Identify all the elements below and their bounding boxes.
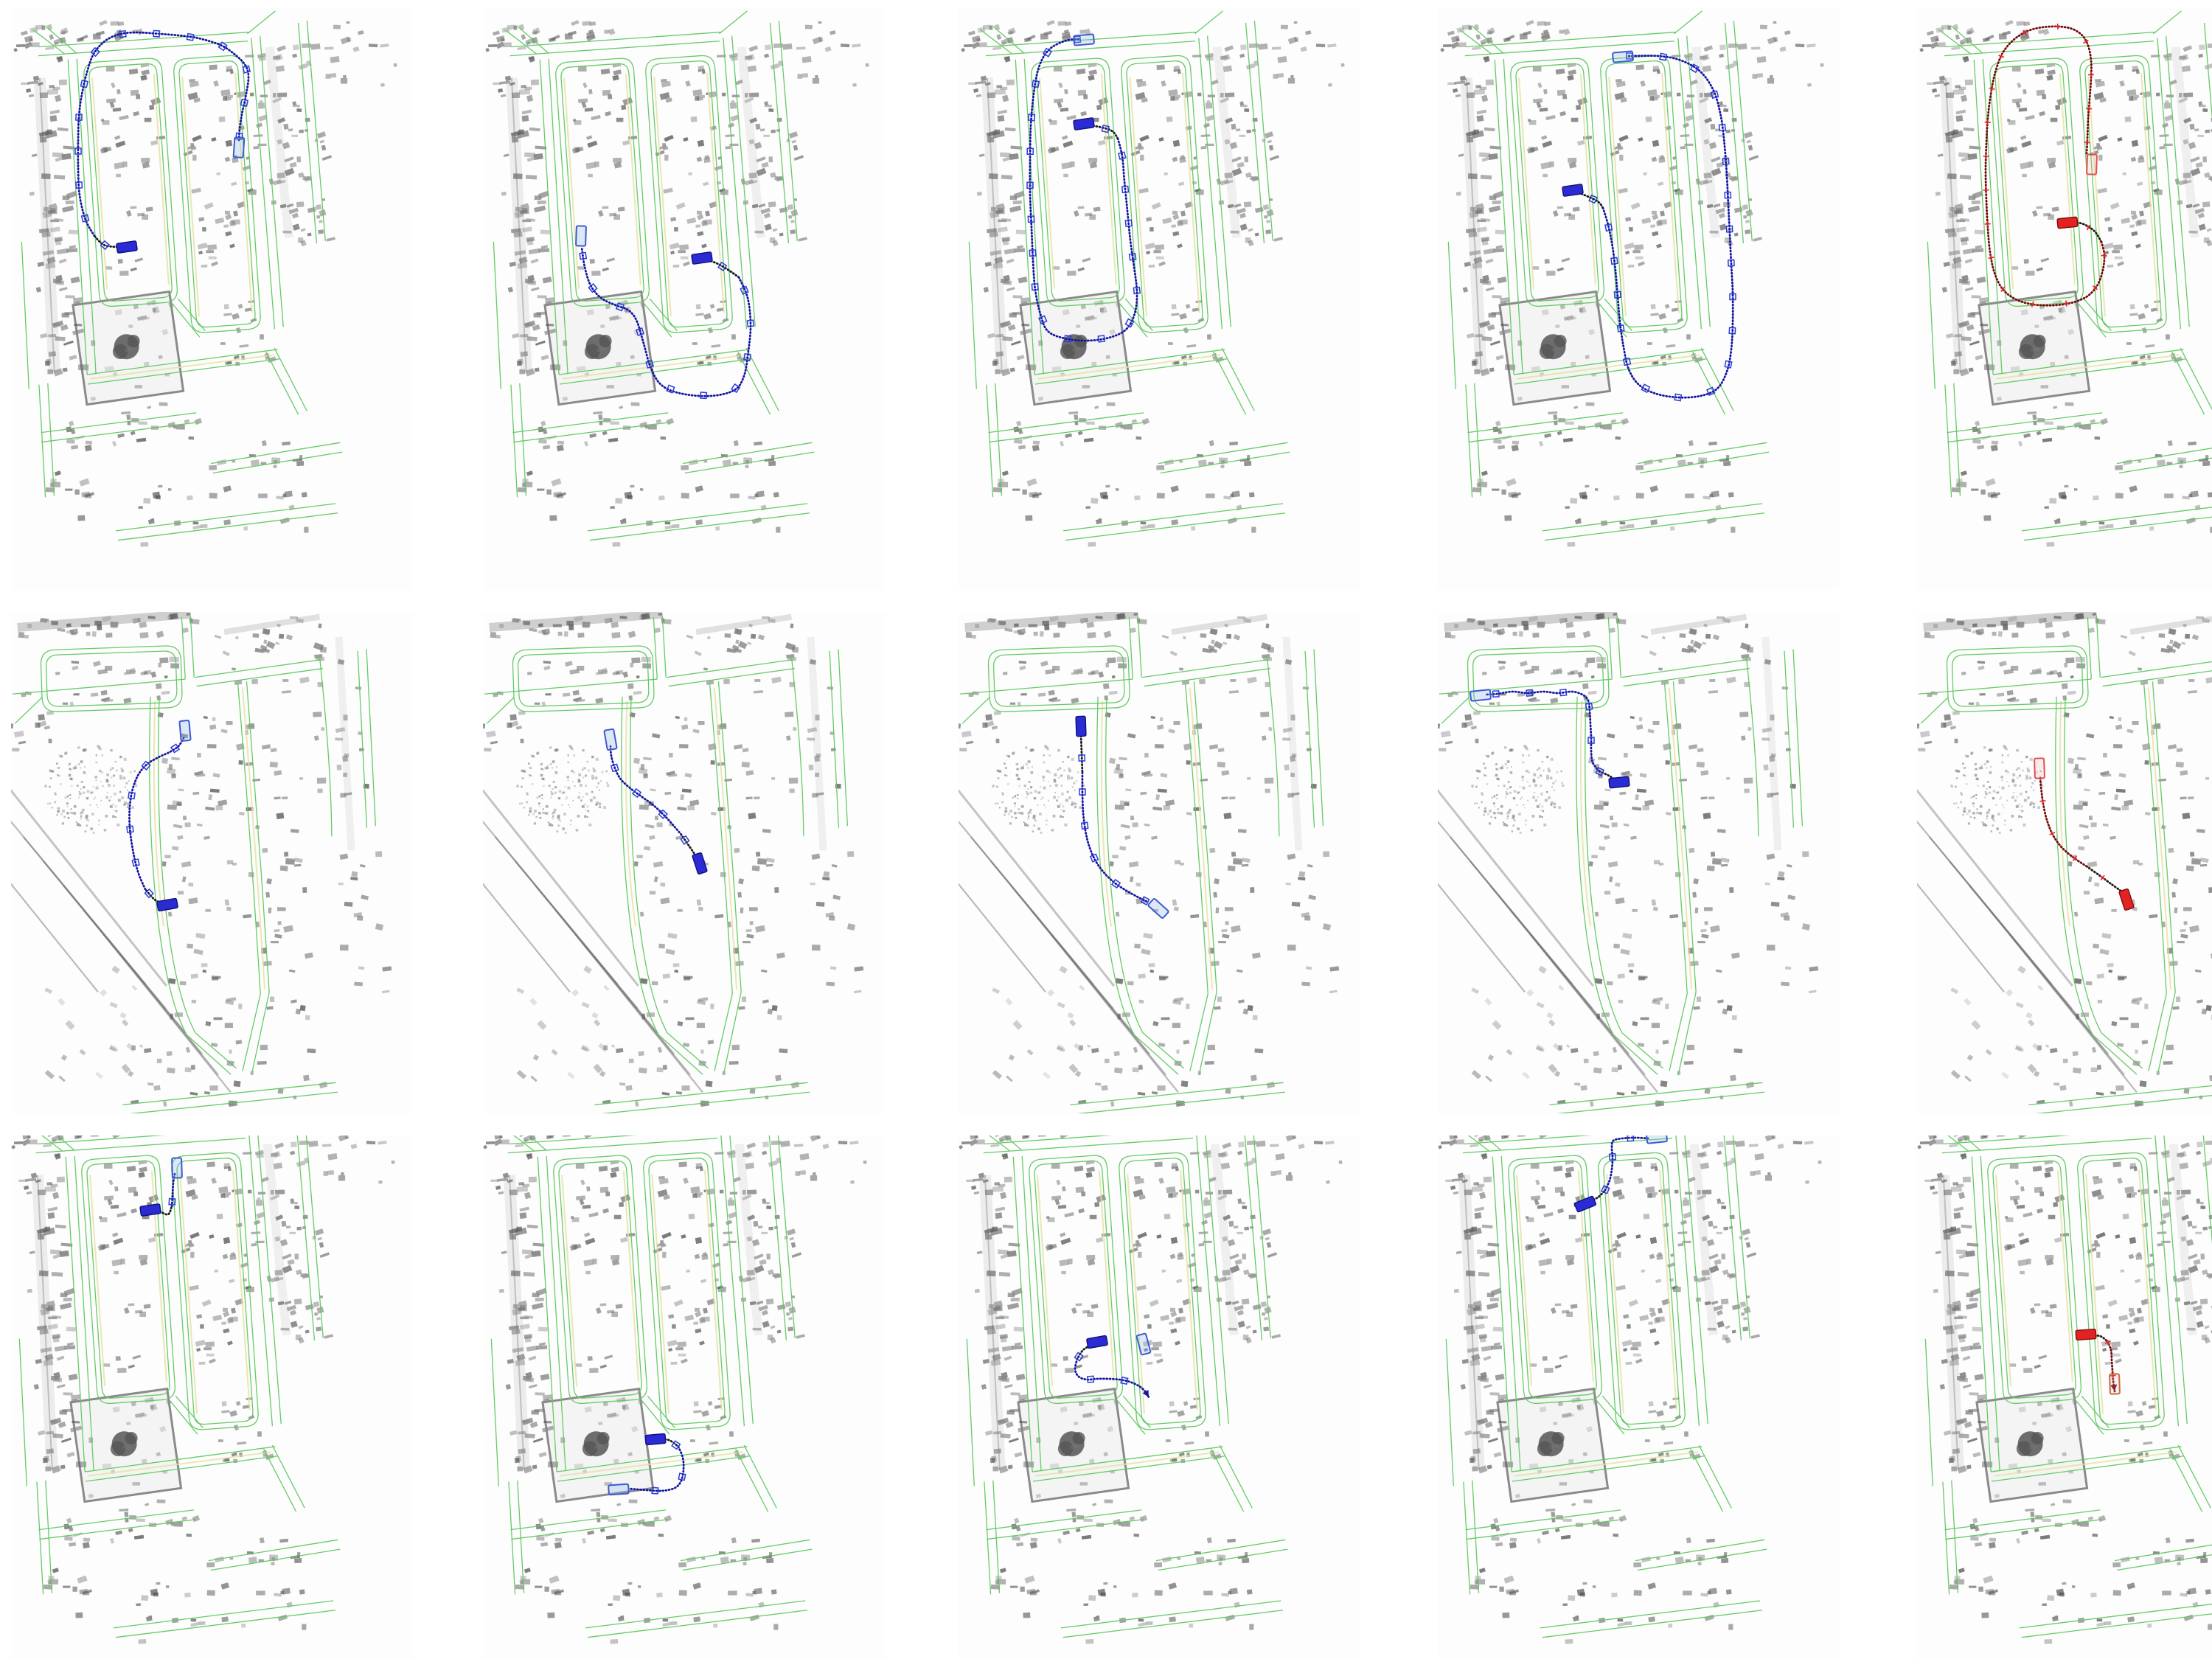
vehicle-rect [1076,716,1086,736]
aerial-map-svg [1917,7,2212,590]
map-panel-row3-col1 [11,1135,413,1659]
goal-rect [1613,51,1633,62]
scene-background [483,1135,885,1651]
map-panel-row3-col4 [1438,1135,1840,1659]
scene-background [11,7,413,554]
goal-rect [2110,1374,2120,1394]
goal-rect [604,729,616,751]
waypoint-marker [1984,221,1990,227]
waypoint-marker [1983,153,1989,159]
aerial-map-svg [11,7,413,590]
map-panel-row2-col5 [1917,612,2212,1113]
waypoint-marker [1988,254,1994,261]
waypoint-marker [740,286,748,294]
scene-background [1917,1135,2212,1651]
aerial-map-svg [1438,612,1840,1113]
map-panel-row1-col2 [483,7,885,590]
map-panel-row3-col5 [1917,1135,2212,1659]
goal-rect [1148,898,1169,919]
scene-background [11,612,397,1113]
goal-rect [608,1484,629,1495]
vehicle-rect [140,1204,161,1217]
scene-background [959,7,1360,554]
scene-background [1438,612,1823,1113]
goal-rect [2034,758,2045,778]
trajectory [1574,1135,1667,1212]
vehicle-rect [645,1433,666,1444]
scene-background [483,7,885,554]
vehicle-rect [2119,888,2135,911]
waypoint-marker [2081,38,2090,46]
map-panel-row2-col3 [959,612,1360,1113]
scene-background [1917,612,2212,1113]
scene-background [959,612,1344,1113]
vehicle-rect [692,252,713,265]
scene-background [959,1135,1360,1651]
goal-rect [1074,34,1094,45]
history-path [1081,736,1082,773]
waypoint-marker [1983,187,1989,193]
scene-background [11,1135,413,1651]
vehicle-rect [1562,184,1584,197]
vehicle-rect [1609,776,1630,788]
aerial-map-svg [11,612,413,1113]
scene-background [1438,7,1840,554]
aerial-map-svg [1917,612,2212,1113]
map-panel-row1-col4 [1438,7,1840,590]
vehicle-rect [116,241,138,254]
aerial-map-svg [1917,1135,2212,1659]
goal-rect [234,137,245,158]
vehicle-rect [692,852,708,874]
scene-background [1917,7,2212,554]
goal-rect [2087,154,2097,174]
trajectory-path [2040,776,2087,866]
goal-rect [1470,689,1491,701]
vehicle-rect [2057,217,2078,229]
trajectory-figure-grid [0,0,2212,1659]
vehicle-rect [1087,1335,1108,1348]
scene-background [483,612,869,1113]
aerial-map-svg [483,612,885,1113]
map-panel-row3-col2 [483,1135,885,1659]
aerial-map-svg [959,612,1360,1113]
map-panel-row1-col5 [1917,7,2212,590]
vehicle-rect [2076,1329,2096,1340]
aerial-map-svg [1438,1135,1840,1659]
waypoint-marker [1989,86,1995,92]
waypoint-marker [1984,119,1990,125]
aerial-map-svg [959,1135,1360,1659]
map-panel-row2-col1 [11,612,413,1113]
aerial-map-svg [483,7,885,590]
goal-rect [576,226,586,246]
trajectory [2034,758,2134,911]
aerial-map-svg [483,1135,885,1659]
map-panel-row2-col2 [483,612,885,1113]
map-panel-row3-col3 [959,1135,1360,1659]
map-panel-row1-col1 [11,7,413,590]
waypoint-marker [2039,798,2046,804]
vehicle-rect [1074,118,1095,131]
map-panel-row1-col3 [959,7,1360,590]
goal-rect [1646,1135,1667,1144]
aerial-map-svg [1438,7,1840,590]
waypoint-marker [2055,24,2061,29]
goal-rect [179,720,190,741]
trajectory-path [129,738,184,889]
waypoint-marker [2048,829,2056,837]
history-path [160,1206,172,1214]
goal-rect [1136,1333,1151,1354]
scene-background [1438,1135,1840,1651]
goal-rect [172,1158,182,1178]
trajectory-path [1082,773,1147,902]
aerial-map-svg [959,7,1360,590]
aerial-map-svg [11,1135,413,1659]
map-panel-row2-col4 [1438,612,1840,1113]
